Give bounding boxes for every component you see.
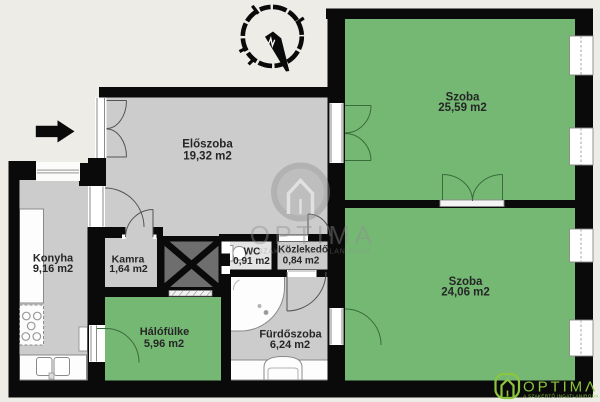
svg-text:25,59 m2: 25,59 m2 — [438, 102, 487, 114]
svg-text:OPTIMA: OPTIMA — [250, 220, 377, 250]
svg-text:0,84 m2: 0,84 m2 — [283, 256, 320, 267]
svg-text:A SZAKÉRTŐ INGATLANIRODA: A SZAKÉRTŐ INGATLANIRODA — [250, 247, 372, 256]
svg-text:A SZAKÉRTŐ INGATLANIRODA: A SZAKÉRTŐ INGATLANIRODA — [523, 392, 598, 398]
svg-text:Hálófülke: Hálófülke — [140, 326, 190, 338]
svg-text:Előszoba: Előszoba — [182, 139, 233, 151]
svg-text:9,16 m2: 9,16 m2 — [33, 263, 73, 275]
svg-text:5,96 m2: 5,96 m2 — [144, 338, 184, 350]
svg-text:24,06 m2: 24,06 m2 — [441, 287, 490, 299]
svg-text:19,32 m2: 19,32 m2 — [183, 151, 232, 163]
svg-text:1,64 m2: 1,64 m2 — [109, 263, 148, 275]
svg-text:0,91 m2: 0,91 m2 — [233, 256, 270, 267]
svg-text:6,24 m2: 6,24 m2 — [270, 339, 310, 351]
